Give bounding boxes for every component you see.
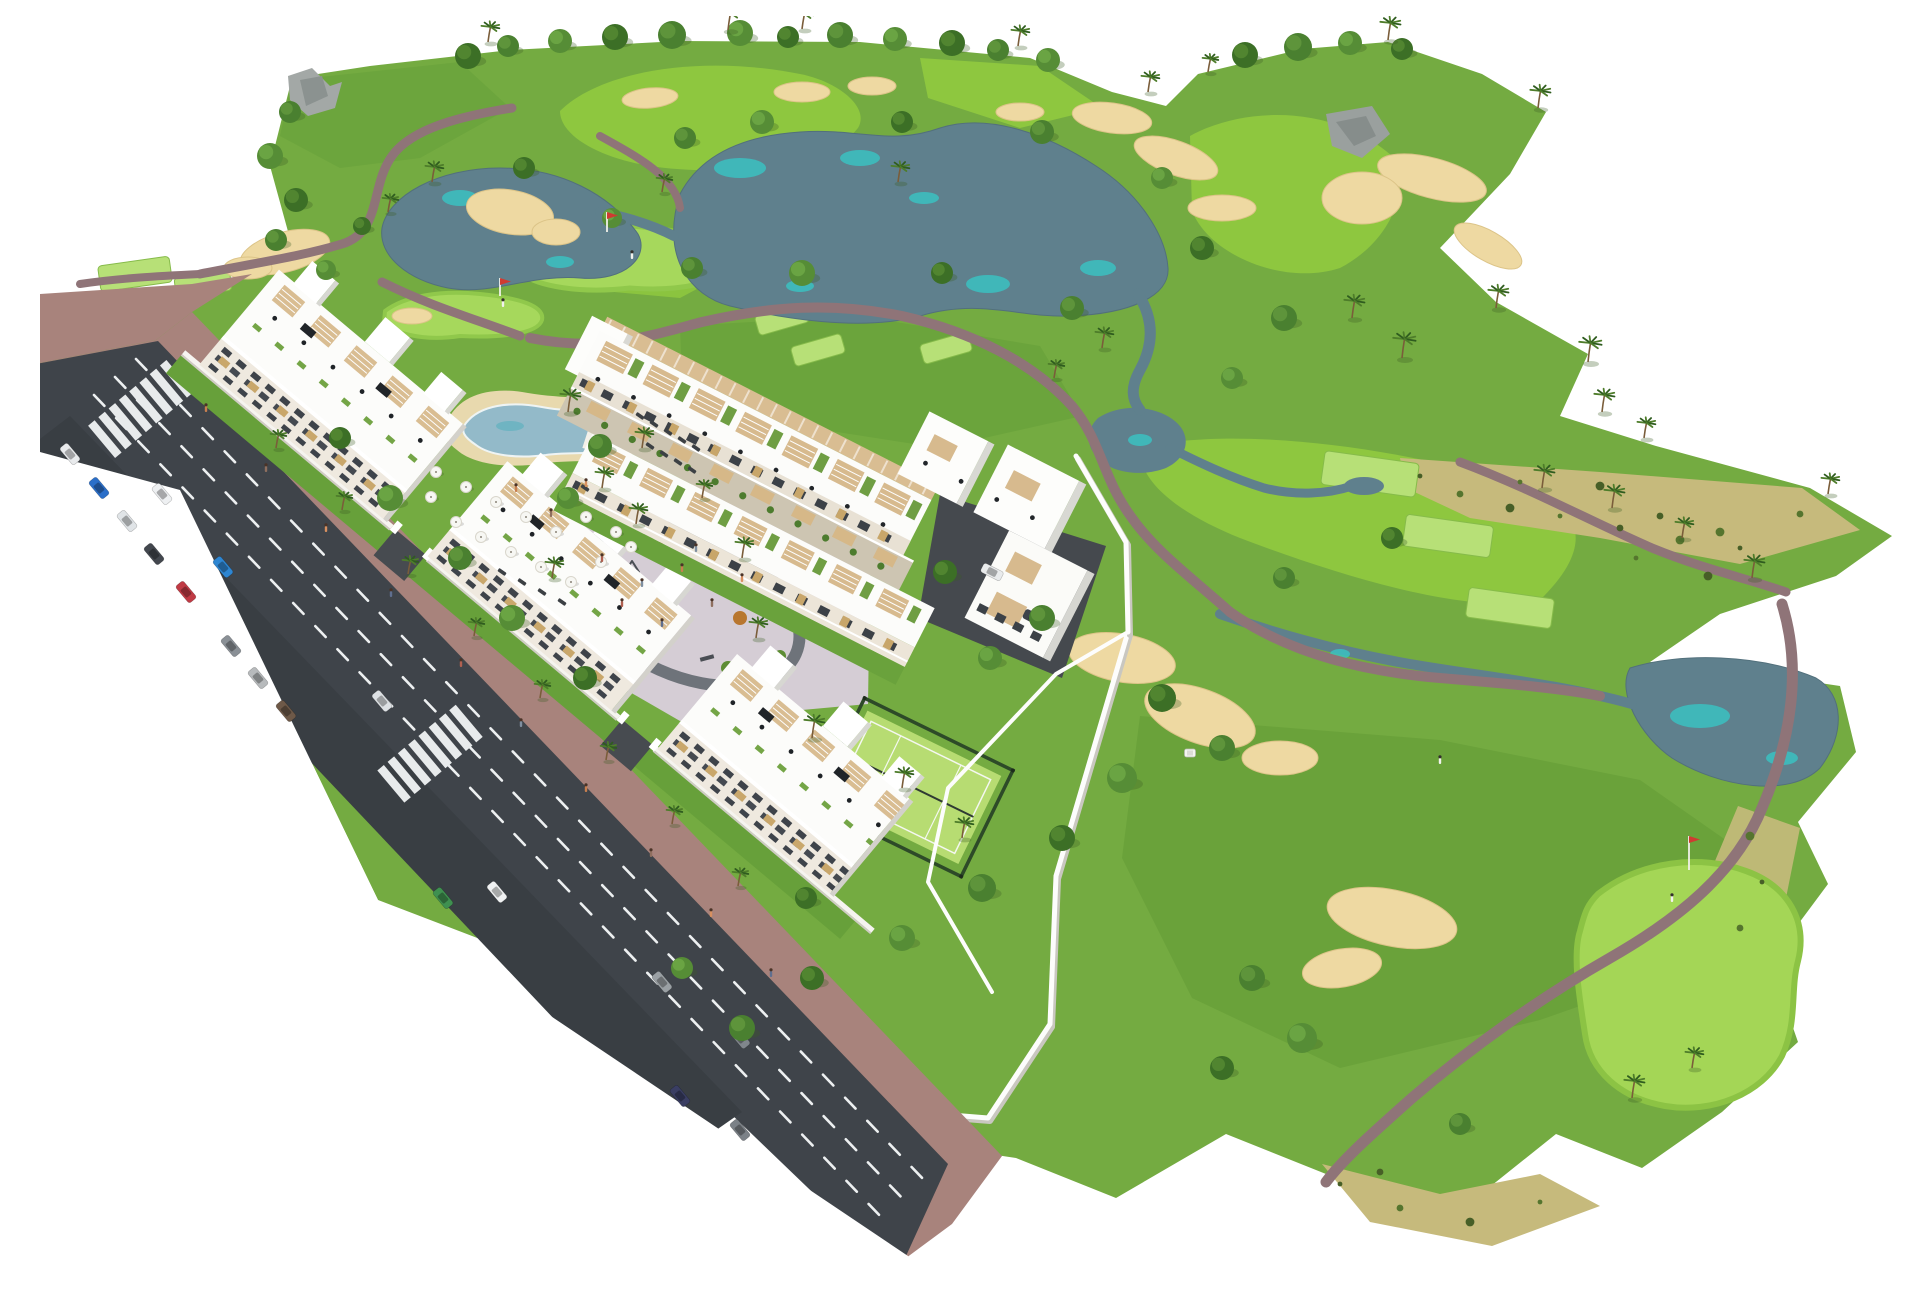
aerial-render-golf-resort: Aerial 3D architectural rendering of a w…: [40, 16, 1920, 1296]
golf-resort-3d-rendering: [40, 16, 1920, 1296]
